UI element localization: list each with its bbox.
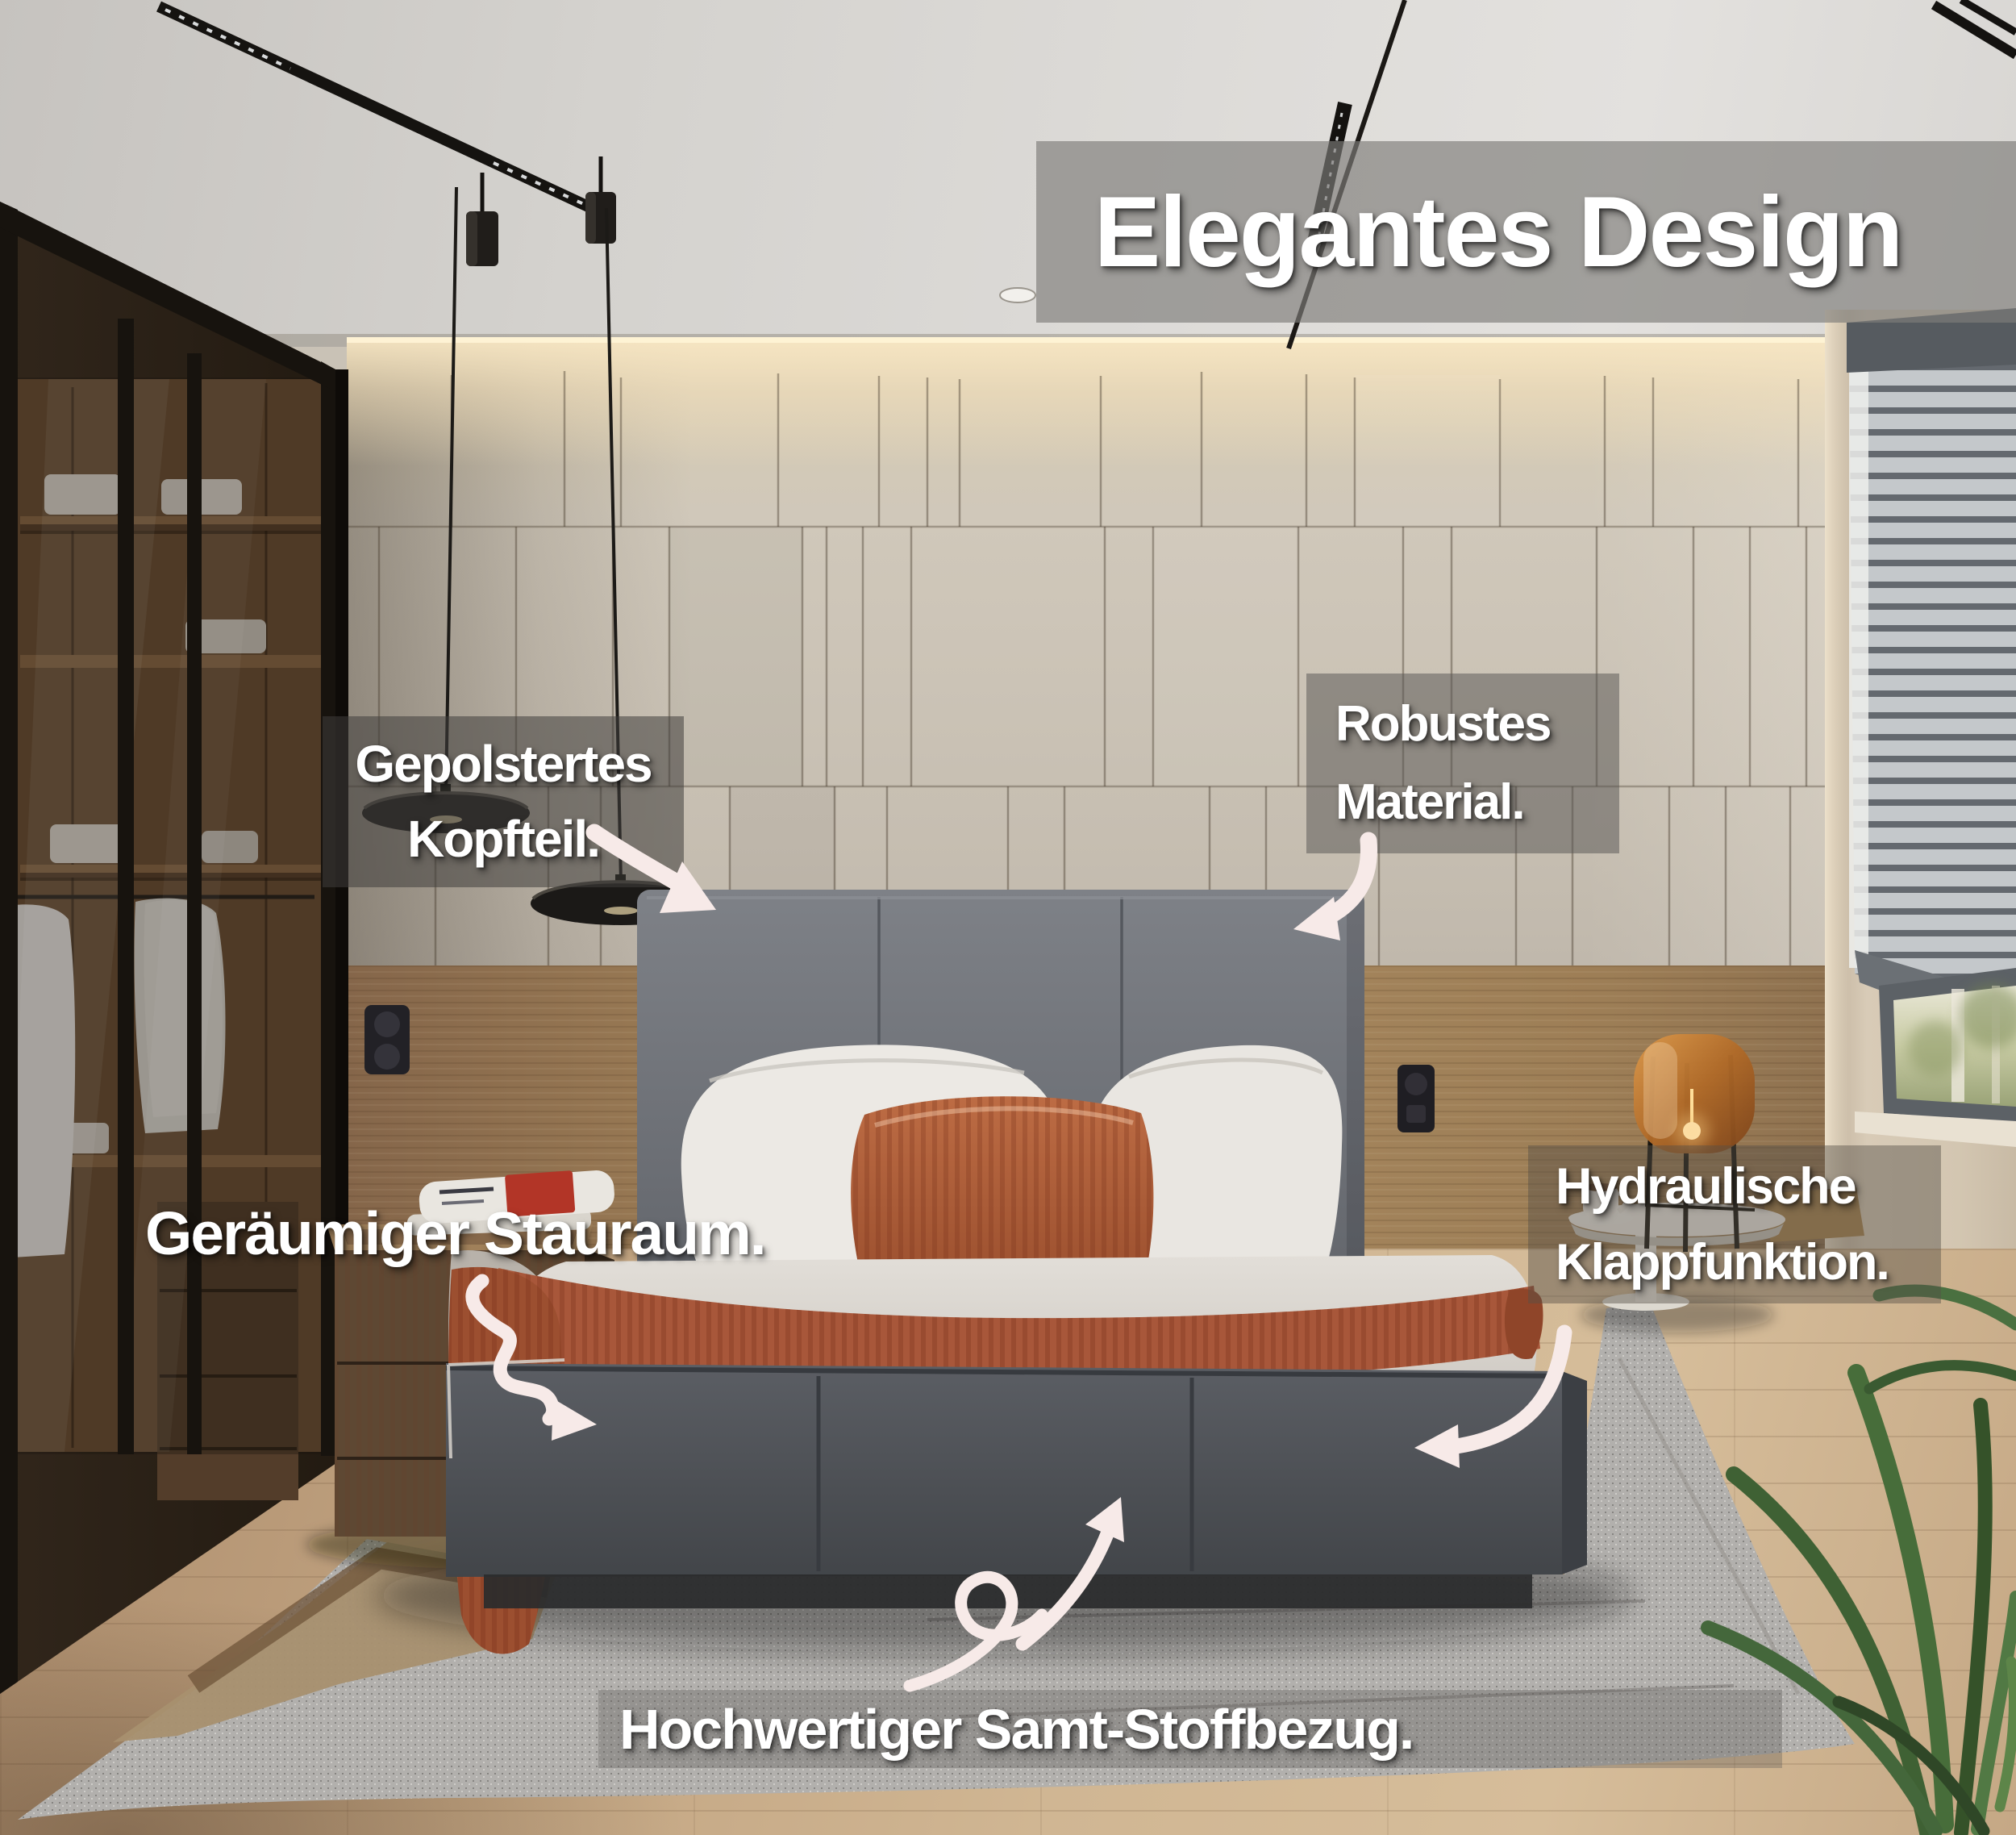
lower-window bbox=[1855, 968, 2016, 1147]
window-blinds bbox=[1847, 308, 2016, 1042]
annotation-hydraulic: Hydraulische Klappfunktion. bbox=[1528, 1145, 1941, 1303]
puck-light-icon bbox=[1000, 288, 1035, 302]
bed-plinth bbox=[484, 1574, 1532, 1608]
annotation-material-line1: Robustes bbox=[1335, 686, 1619, 763]
annotation-headboard: Gepolstertes Kopfteil. bbox=[323, 716, 684, 887]
bedroom-product-photo: Elegantes Design Gepolstertes Kopfteil. … bbox=[0, 0, 2016, 1835]
ceiling-spots-icon bbox=[466, 156, 616, 266]
annotation-fabric-strip: Hochwertiger Samt-Stoffbezug. bbox=[598, 1690, 1782, 1768]
socket-left-icon bbox=[364, 1005, 410, 1074]
wall-panel-shading bbox=[669, 375, 1500, 965]
socket-right-icon bbox=[1397, 1065, 1435, 1132]
annotation-material: Robustes Material. bbox=[1306, 674, 1619, 853]
annotation-hydraulic-line2: Klappfunktion. bbox=[1556, 1224, 1941, 1301]
track-light-left-icon bbox=[159, 6, 609, 216]
headline-text: Elegantes Design bbox=[1094, 175, 1902, 290]
storage-base bbox=[446, 1360, 1587, 1608]
annotation-material-line2: Material. bbox=[1335, 764, 1619, 841]
headline-badge: Elegantes Design bbox=[1036, 141, 2016, 323]
annotation-storage: Geräumiger Stauraum. bbox=[145, 1199, 774, 1268]
annotation-hydraulic-line1: Hydraulische bbox=[1556, 1149, 1941, 1225]
bed bbox=[446, 890, 1587, 1654]
annotation-headboard-line1: Gepolstertes bbox=[355, 727, 651, 802]
annotation-fabric-text: Hochwertiger Samt-Stoffbezug. bbox=[619, 1697, 1413, 1762]
annotation-headboard-line2: Kopfteil. bbox=[407, 802, 599, 877]
wardrobe bbox=[0, 202, 348, 1694]
